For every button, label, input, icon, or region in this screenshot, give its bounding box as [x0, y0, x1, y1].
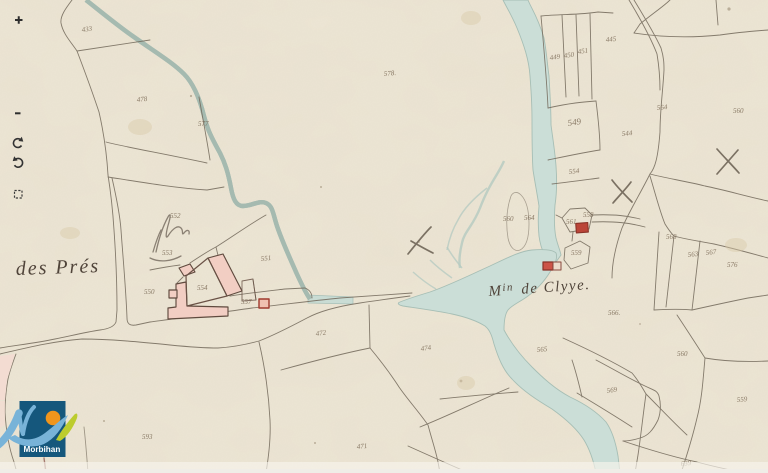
svg-text:553: 553 — [162, 249, 173, 257]
svg-text:550: 550 — [144, 288, 155, 296]
svg-text:450: 450 — [563, 51, 575, 60]
svg-text:433: 433 — [81, 25, 93, 34]
svg-text:451: 451 — [577, 47, 589, 56]
svg-text:478: 478 — [136, 95, 148, 104]
svg-text:544: 544 — [621, 129, 633, 138]
svg-text:554: 554 — [197, 284, 208, 292]
svg-text:566.: 566. — [608, 309, 621, 317]
svg-text:559: 559 — [571, 249, 582, 257]
svg-text:564: 564 — [524, 214, 535, 222]
svg-text:563: 563 — [687, 250, 699, 259]
svg-text:549: 549 — [567, 116, 582, 128]
svg-text:561: 561 — [566, 218, 577, 226]
svg-text:578.: 578. — [383, 69, 396, 78]
svg-text:474: 474 — [420, 344, 432, 353]
svg-text:560: 560 — [733, 107, 744, 115]
svg-text:471: 471 — [356, 442, 367, 451]
svg-text:des Prés: des Prés — [15, 255, 100, 280]
svg-text:445: 445 — [605, 35, 617, 44]
svg-text:577: 577 — [198, 120, 209, 128]
svg-text:564: 564 — [656, 103, 668, 112]
svg-text:557: 557 — [241, 298, 252, 306]
svg-text:569: 569 — [606, 386, 618, 395]
svg-text:Morbihan: Morbihan — [24, 445, 61, 454]
svg-text:554: 554 — [568, 167, 580, 176]
svg-text:560: 560 — [503, 215, 514, 223]
svg-text:593: 593 — [142, 433, 153, 441]
svg-text:560: 560 — [677, 350, 688, 358]
svg-text:567: 567 — [705, 248, 717, 257]
svg-text:568: 568 — [666, 233, 677, 241]
svg-text:559: 559 — [736, 395, 748, 404]
svg-text:472: 472 — [315, 329, 327, 338]
svg-text:565: 565 — [536, 345, 548, 354]
svg-text:576: 576 — [727, 261, 738, 269]
svg-text:552: 552 — [170, 212, 181, 220]
svg-text:558: 558 — [583, 211, 594, 219]
svg-text:551: 551 — [260, 254, 271, 263]
svg-text:449: 449 — [549, 53, 561, 62]
